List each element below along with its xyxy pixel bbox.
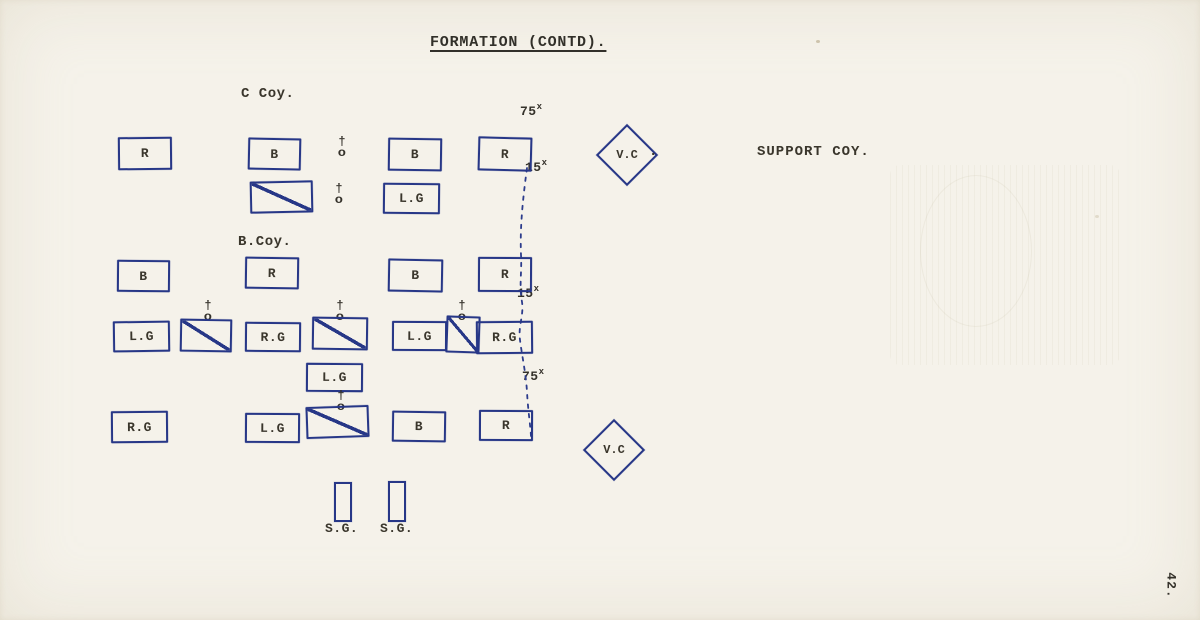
unit-label: R [141,147,149,160]
unit-box: R [478,257,532,292]
vc-label: V.C [594,430,634,470]
officer-marker-icon: †o [330,183,348,206]
unit-box: B [117,260,170,292]
unit-label: R.G [492,331,517,344]
unit-box: R.G [476,321,533,355]
b-coy-label: B.Coy. [238,234,291,250]
officer-marker-circle: o [335,193,343,205]
officer-marker-icon: †o [333,136,351,159]
unit-box: L.G [113,321,170,353]
sg-unit-box [334,482,352,522]
unit-label: L.G [399,192,424,205]
unit-box: B [388,259,444,293]
unit-box: B [392,411,446,443]
unit-label: L.G [322,371,347,384]
unit-label: R.G [127,420,152,433]
unit-box: R [118,137,172,171]
sg-label: S.G. [380,521,413,536]
unit-label: R [501,147,510,160]
unit-box: R.G [245,322,301,352]
unit-label: R.G [260,330,285,343]
unit-label: B [270,147,279,160]
unit-label: L.G [407,329,432,342]
unit-label: R [502,419,510,432]
scanned-document-page: FORMATION (CONTD). C Coy. B.Coy. SUPPORT… [0,0,1200,620]
distance-sup: x [537,102,543,112]
unit-label: B [411,148,419,161]
vc-diamond-bottom: V.C [583,419,645,481]
unit-box: L.G [306,363,363,392]
sg-label: S.G. [325,521,358,536]
distance-value: 75 [520,104,537,119]
page-title: FORMATION (CONTD). [430,34,606,51]
unit-box: R.G [111,411,168,443]
unit-label: B [139,269,147,282]
officer-marker-circle: o [338,146,346,158]
unit-box: B [248,137,302,170]
unit-label: R [268,266,276,279]
unit-box: L.G [383,183,440,215]
unit-box: R [479,410,533,441]
unit-label: R [501,268,509,281]
unit-label: B [411,269,420,282]
unit-box-diagonal [312,317,368,351]
paper-watermark-crest [920,175,1032,327]
unit-box: R [245,257,299,290]
unit-box: L.G [245,413,300,443]
unit-box: R [478,136,533,171]
unit-label: B [415,420,423,433]
unit-box-diagonal [180,319,233,353]
page-number: 42. [1164,572,1179,598]
boundary-dashed-line [505,160,547,450]
unit-box-diagonal [250,180,314,213]
c-coy-label: C Coy. [241,86,294,102]
unit-box: B [388,138,442,172]
vc-label: V.C [607,135,647,175]
unit-box: L.G [392,321,447,351]
sg-unit-box [388,481,406,522]
paper-speck [816,40,820,43]
vc-period-mark: . [649,144,657,160]
unit-box-diagonal [305,405,369,439]
unit-label: L.G [260,421,285,434]
paper-speck [1095,215,1099,218]
unit-label: L.G [129,330,154,343]
support-coy-label: SUPPORT COY. [757,144,870,160]
distance-marker-75-top: 75x [520,102,543,119]
